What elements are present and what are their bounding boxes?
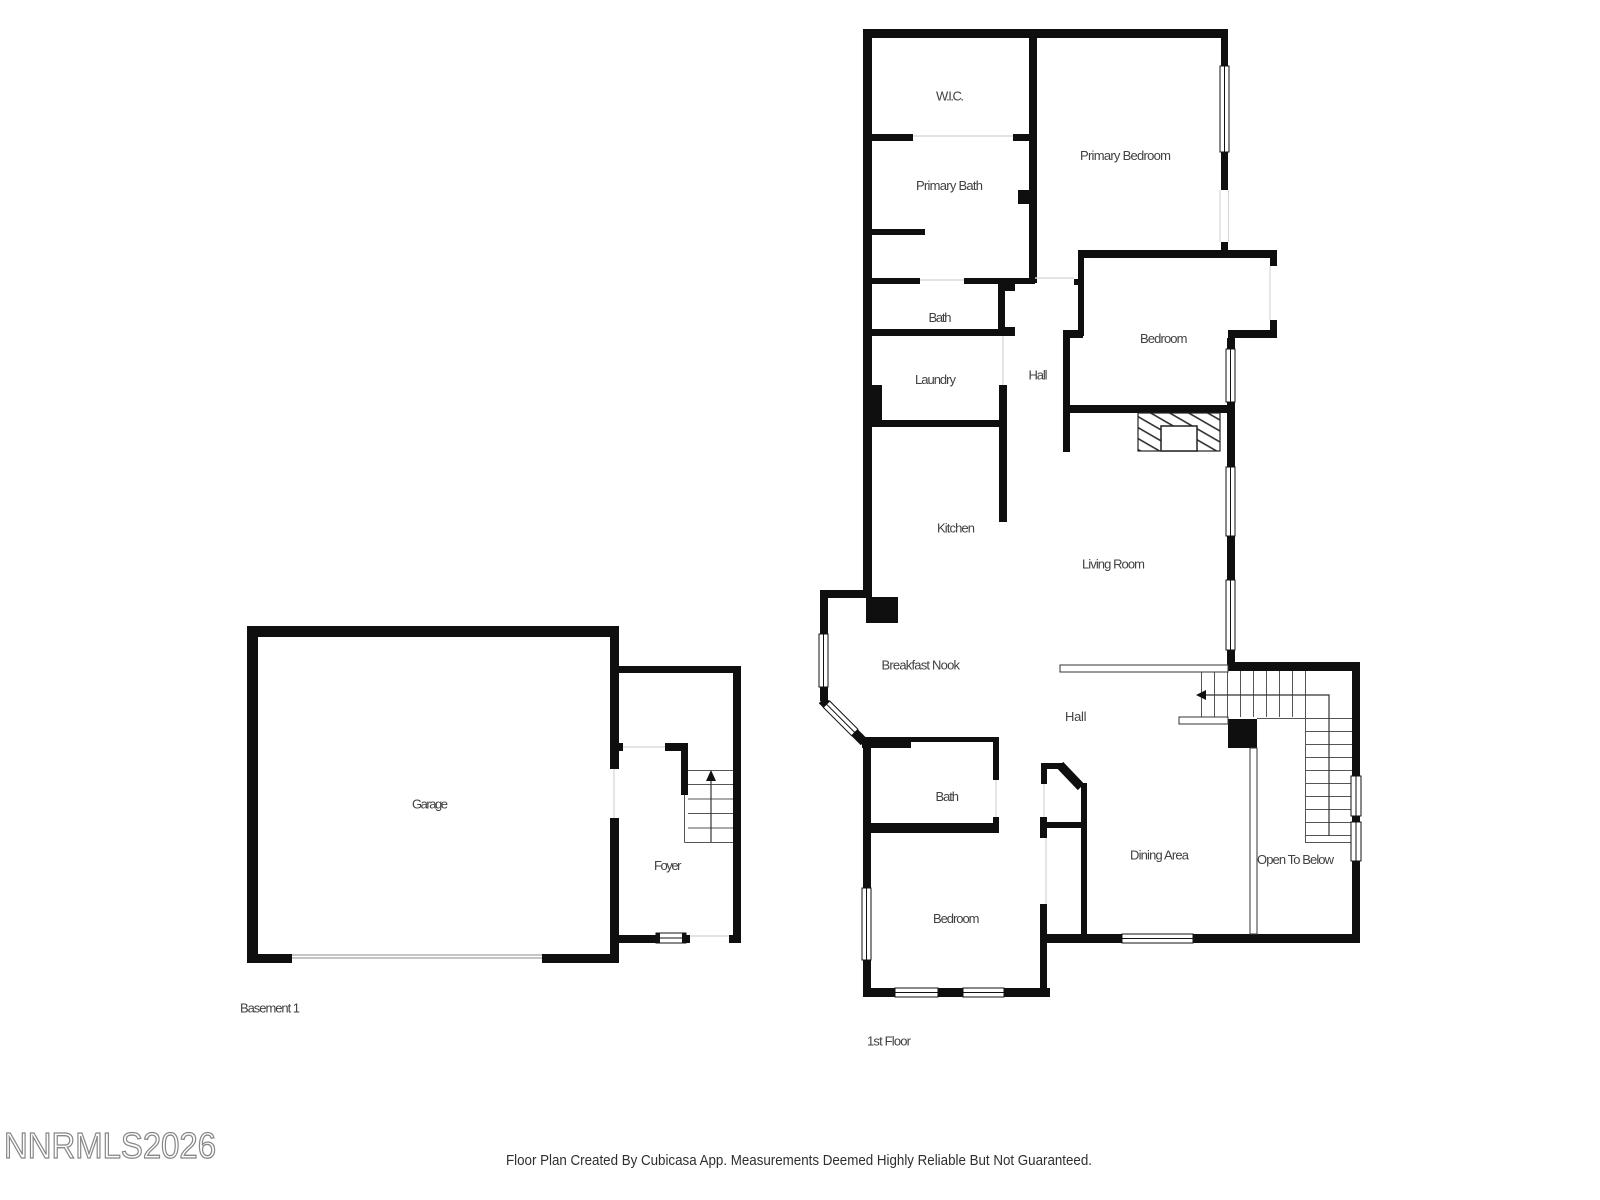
svg-text:Floor Plan Created By Cubicasa: Floor Plan Created By Cubicasa App. Meas… xyxy=(506,1152,1092,1169)
svg-text:Hall: Hall xyxy=(1065,709,1087,724)
svg-text:Laundry: Laundry xyxy=(915,372,957,387)
svg-text:Hall: Hall xyxy=(1029,368,1048,383)
svg-text:Open To Below: Open To Below xyxy=(1257,852,1335,867)
svg-text:Bedroom: Bedroom xyxy=(1140,331,1188,346)
svg-text:Bedroom: Bedroom xyxy=(933,911,980,926)
svg-text:Bath: Bath xyxy=(936,789,960,804)
svg-text:NNRMLS2026: NNRMLS2026 xyxy=(4,1125,216,1166)
svg-text:Dining Area: Dining Area xyxy=(1130,848,1190,863)
svg-text:Bath: Bath xyxy=(929,310,952,325)
svg-text:Breakfast Nook: Breakfast Nook xyxy=(882,658,961,673)
svg-text:Garage: Garage xyxy=(412,797,448,812)
svg-text:Primary Bedroom: Primary Bedroom xyxy=(1080,148,1171,163)
svg-text:W.I.C.: W.I.C. xyxy=(936,89,964,104)
svg-text:Primary Bath: Primary Bath xyxy=(916,178,983,193)
svg-text:Kitchen: Kitchen xyxy=(937,521,975,536)
svg-text:Foyer: Foyer xyxy=(654,858,682,873)
svg-text:Basement 1: Basement 1 xyxy=(240,1001,300,1016)
svg-text:Living Room: Living Room xyxy=(1082,557,1145,572)
svg-text:1st Floor: 1st Floor xyxy=(867,1034,912,1049)
